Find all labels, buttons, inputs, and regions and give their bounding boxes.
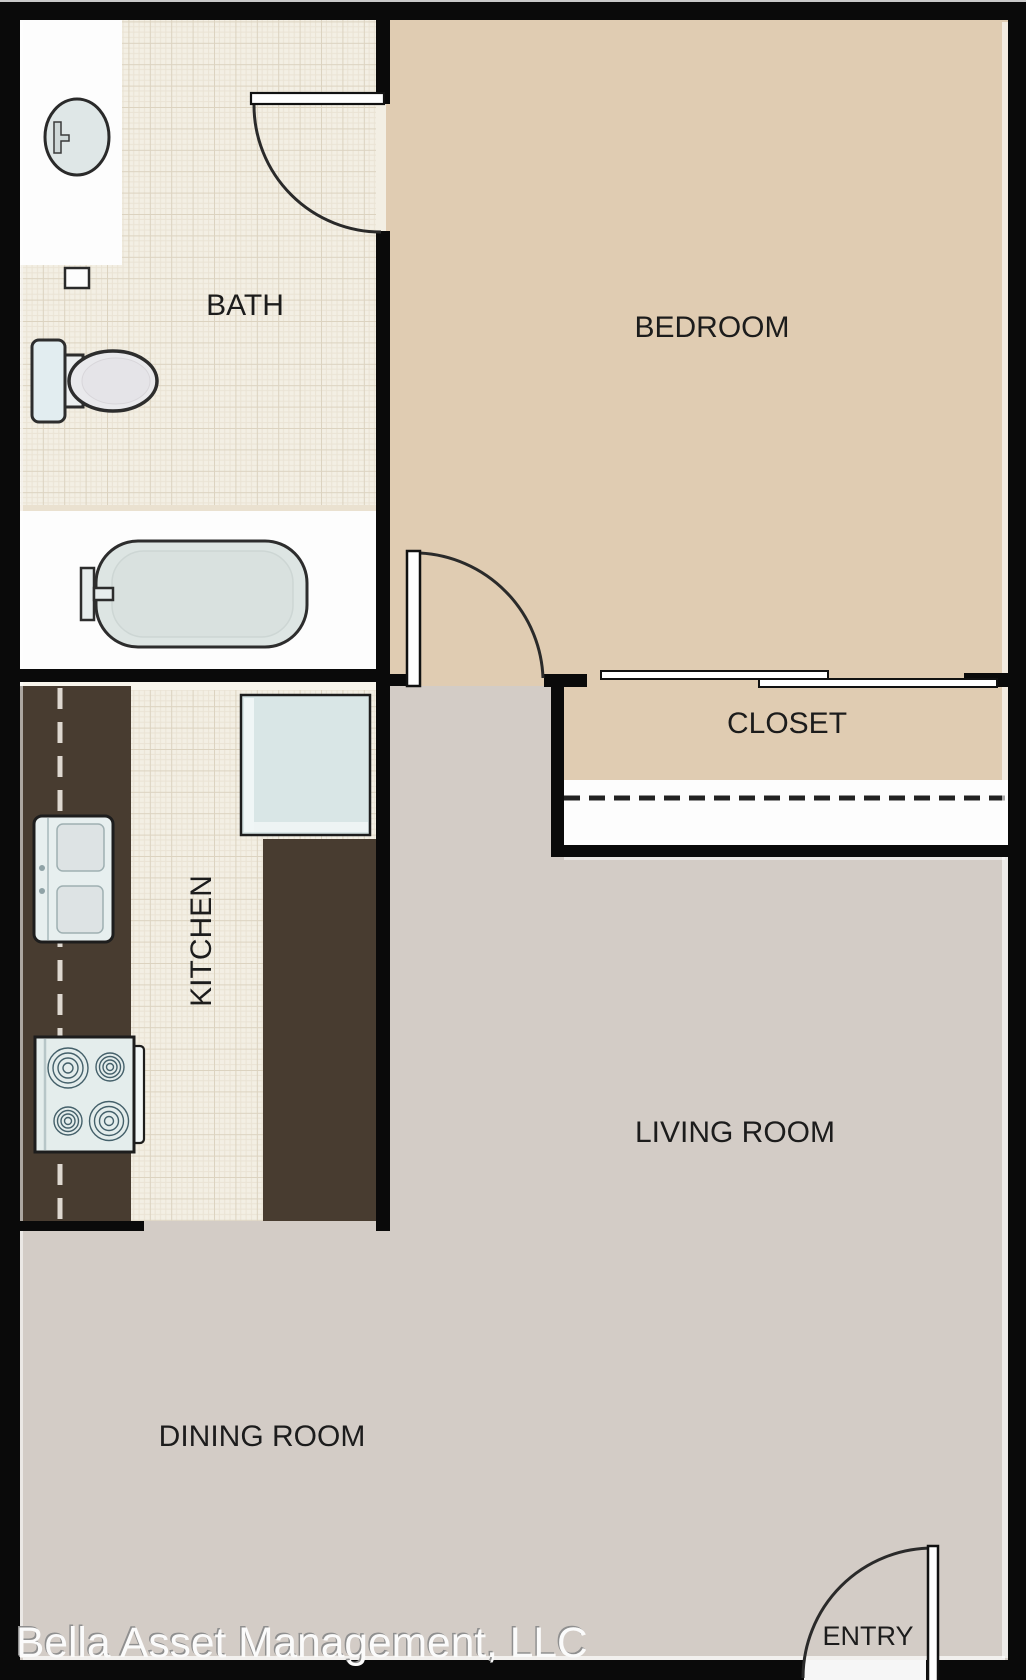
svg-text:KITCHEN: KITCHEN (185, 875, 218, 1007)
svg-text:LIVING ROOM: LIVING ROOM (635, 1116, 835, 1149)
svg-text:DINING ROOM: DINING ROOM (159, 1420, 366, 1453)
svg-text:Bella Asset Management, LLC: Bella Asset Management, LLC (16, 1620, 588, 1667)
svg-text:BEDROOM: BEDROOM (634, 311, 789, 344)
svg-text:CLOSET: CLOSET (727, 707, 847, 740)
svg-text:ENTRY: ENTRY (822, 1621, 913, 1651)
svg-text:BATH: BATH (206, 289, 284, 322)
